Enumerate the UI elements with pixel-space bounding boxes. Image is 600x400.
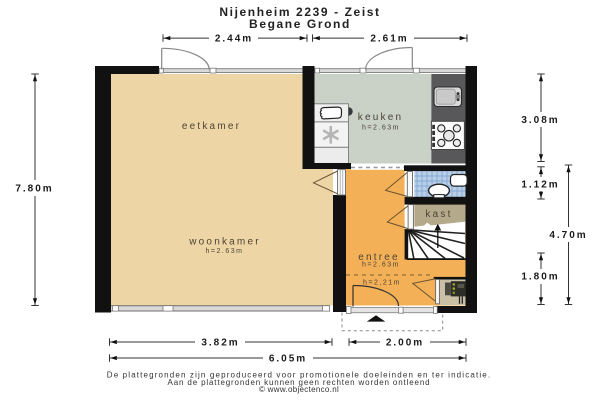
svg-text:1.80m: 1.80m	[521, 272, 559, 283]
svg-text:3.82m: 3.82m	[201, 338, 239, 349]
svg-text:6.05m: 6.05m	[269, 354, 307, 365]
svg-text:h=2.63m: h=2.63m	[362, 125, 400, 132]
svg-text:© www.objectenco.nl: © www.objectenco.nl	[259, 385, 339, 394]
svg-text:woonkamer: woonkamer	[188, 237, 261, 248]
svg-text:7.80m: 7.80m	[15, 184, 53, 195]
svg-text:2.00m: 2.00m	[386, 338, 424, 349]
svg-text:Begane Grond: Begane Grond	[249, 17, 351, 31]
svg-text:3.08m: 3.08m	[521, 115, 559, 126]
svg-text:h=2,21m: h=2,21m	[363, 280, 401, 287]
svg-text:keuken: keuken	[358, 112, 403, 123]
svg-text:2.44m: 2.44m	[215, 34, 253, 45]
svg-text:eetkamer: eetkamer	[182, 121, 241, 132]
svg-text:h=2.63m: h=2.63m	[206, 248, 244, 255]
svg-text:2.61m: 2.61m	[370, 34, 408, 45]
svg-text:1.12m: 1.12m	[521, 180, 559, 191]
svg-text:kast: kast	[425, 209, 452, 220]
svg-text:h=2.63m: h=2.63m	[362, 262, 400, 269]
svg-text:4.70m: 4.70m	[549, 230, 587, 241]
